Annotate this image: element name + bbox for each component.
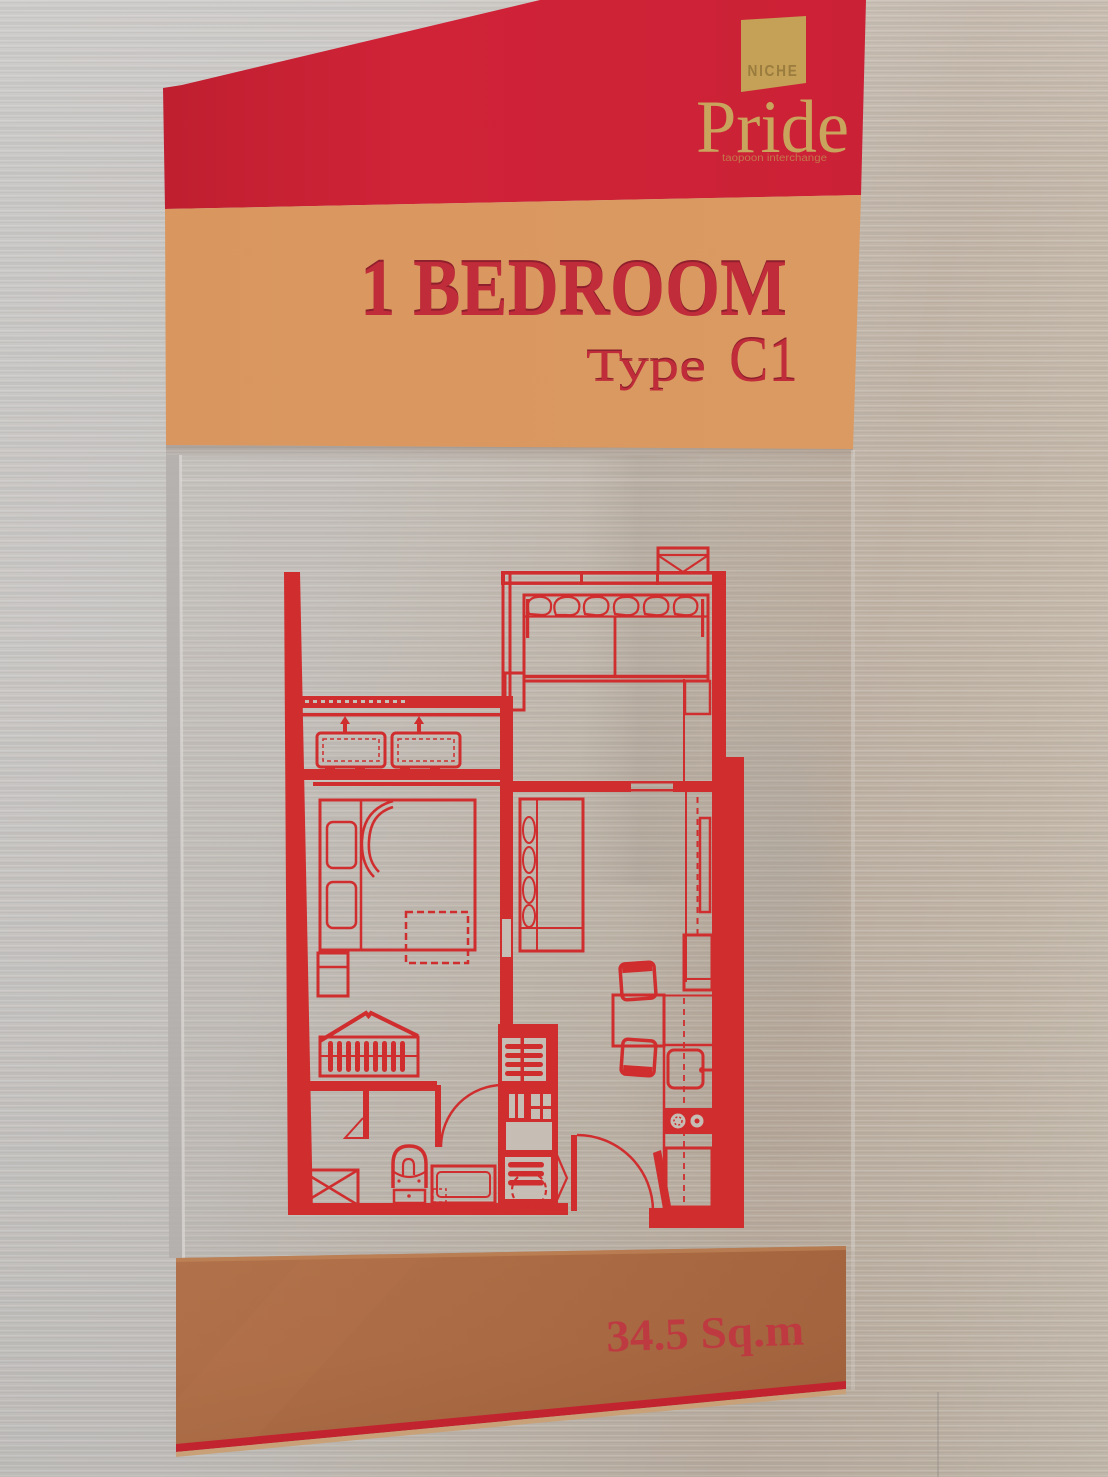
svg-text:C1: C1 [729, 324, 798, 395]
svg-text:Type: Type [586, 340, 706, 391]
svg-text:1 BEDROOM: 1 BEDROOM [360, 245, 787, 333]
svg-text:NICHE: NICHE [748, 63, 799, 80]
svg-text:taopoon interchange: taopoon interchange [722, 153, 828, 164]
